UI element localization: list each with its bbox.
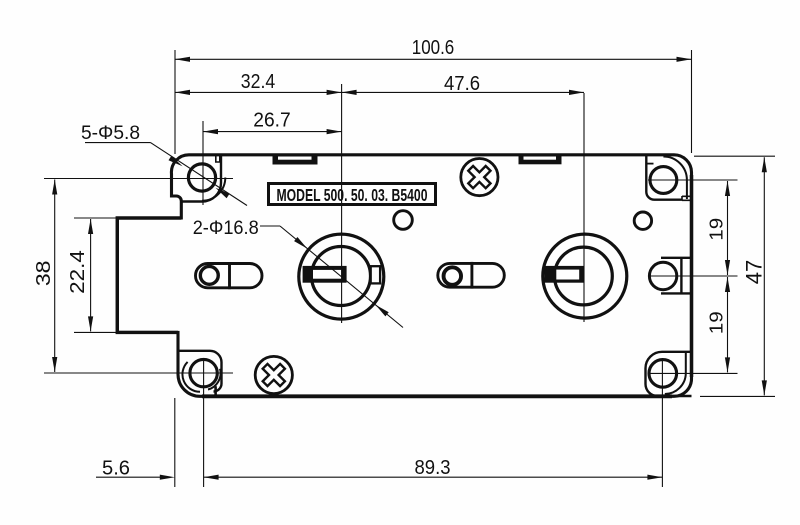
svg-text:2-Φ16.8: 2-Φ16.8 [193,218,259,239]
svg-text:MODEL 500. 50. 03. B5400: MODEL 500. 50. 03. B5400 [277,185,428,205]
svg-text:38: 38 [33,260,55,286]
svg-text:19: 19 [706,311,727,334]
svg-text:5-Φ5.8: 5-Φ5.8 [81,123,140,144]
svg-text:47: 47 [742,260,767,284]
svg-text:26.7: 26.7 [253,110,291,132]
svg-text:89.3: 89.3 [415,457,451,479]
svg-text:32.4: 32.4 [241,71,275,93]
svg-text:5.6: 5.6 [102,458,130,480]
svg-text:22.4: 22.4 [67,250,89,294]
svg-text:47.6: 47.6 [444,73,480,95]
svg-text:100.6: 100.6 [412,37,455,59]
svg-text:19: 19 [706,218,727,241]
